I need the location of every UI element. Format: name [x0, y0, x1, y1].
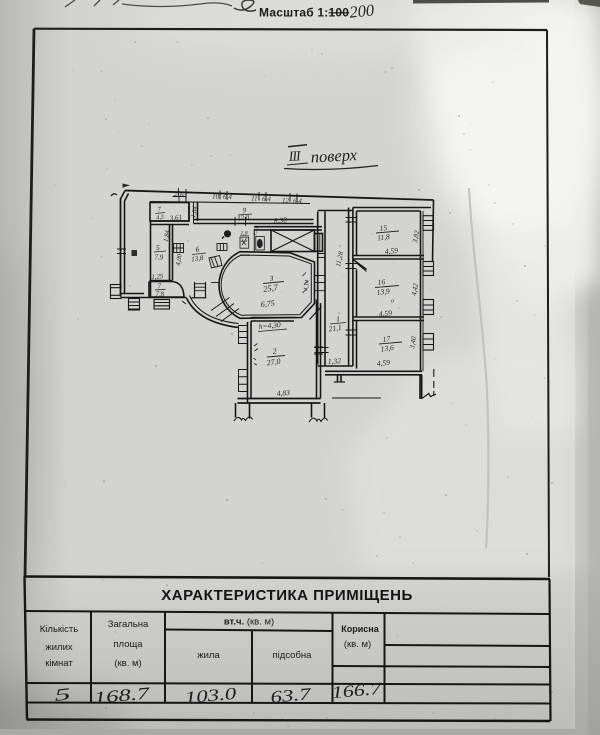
- svg-text:Загальна: Загальна: [108, 619, 149, 630]
- svg-text:4,83: 4,83: [276, 388, 290, 398]
- svg-text:5: 5: [53, 684, 71, 705]
- svg-text:21,1: 21,1: [328, 323, 342, 334]
- svg-text:жила: жила: [197, 650, 220, 661]
- svg-text:h=4,30: h=4,30: [258, 320, 281, 331]
- svg-text:4,59: 4,59: [376, 358, 390, 368]
- svg-text:площа: площа: [113, 639, 143, 650]
- svg-text:200: 200: [348, 0, 375, 22]
- svg-text:1,32: 1,32: [328, 356, 342, 366]
- svg-text:кімнат: кімнат: [45, 658, 73, 669]
- svg-text:12,0: 12,0: [237, 214, 250, 222]
- svg-text:вт.ч. (кв. м): вт.ч. (кв. м): [224, 617, 274, 628]
- svg-text:(кв. м): (кв. м): [344, 639, 371, 650]
- svg-text:63.7: 63.7: [270, 685, 313, 707]
- svg-text:7,9: 7,9: [155, 254, 164, 262]
- svg-text:12: 12: [282, 197, 290, 205]
- svg-text:7,8: 7,8: [156, 292, 165, 299]
- svg-text:підсобна: підсобна: [273, 650, 313, 661]
- svg-text:6,4: 6,4: [262, 195, 272, 203]
- svg-text:16: 16: [377, 277, 386, 287]
- svg-text:13,9: 13,9: [376, 286, 390, 297]
- svg-text:4,59: 4,59: [378, 308, 392, 318]
- svg-text:Корисна: Корисна: [341, 624, 379, 634]
- svg-text:6,4: 6,4: [223, 193, 233, 201]
- svg-text:о: о: [391, 299, 394, 305]
- svg-text:Масштаб 1:100: Масштаб 1:100: [259, 6, 349, 20]
- svg-text:ХАРАКТЕРИСТИКА ПРИМІЩЕНЬ: ХАРАКТЕРИСТИКА ПРИМІЩЕНЬ: [161, 587, 413, 604]
- svg-text:11,8: 11,8: [377, 232, 391, 242]
- svg-text:2,5: 2,5: [241, 238, 248, 244]
- svg-text:6,4: 6,4: [293, 197, 303, 205]
- svg-text:жилих: жилих: [45, 642, 73, 653]
- svg-text:1,25: 1,25: [151, 273, 164, 281]
- svg-text:10: 10: [212, 193, 220, 201]
- svg-text:63: 63: [180, 191, 188, 199]
- svg-text:13,6: 13,6: [380, 343, 394, 354]
- svg-text:5: 5: [156, 243, 160, 252]
- svg-text:поверх: поверх: [310, 145, 358, 166]
- svg-text:(кв. м): (кв. м): [114, 658, 141, 669]
- svg-text:6,75: 6,75: [260, 299, 275, 309]
- svg-text:Кількість: Кількість: [40, 624, 79, 635]
- svg-text:11: 11: [251, 195, 258, 203]
- svg-text:8,30: 8,30: [273, 215, 287, 225]
- svg-text:4,59: 4,59: [384, 246, 398, 256]
